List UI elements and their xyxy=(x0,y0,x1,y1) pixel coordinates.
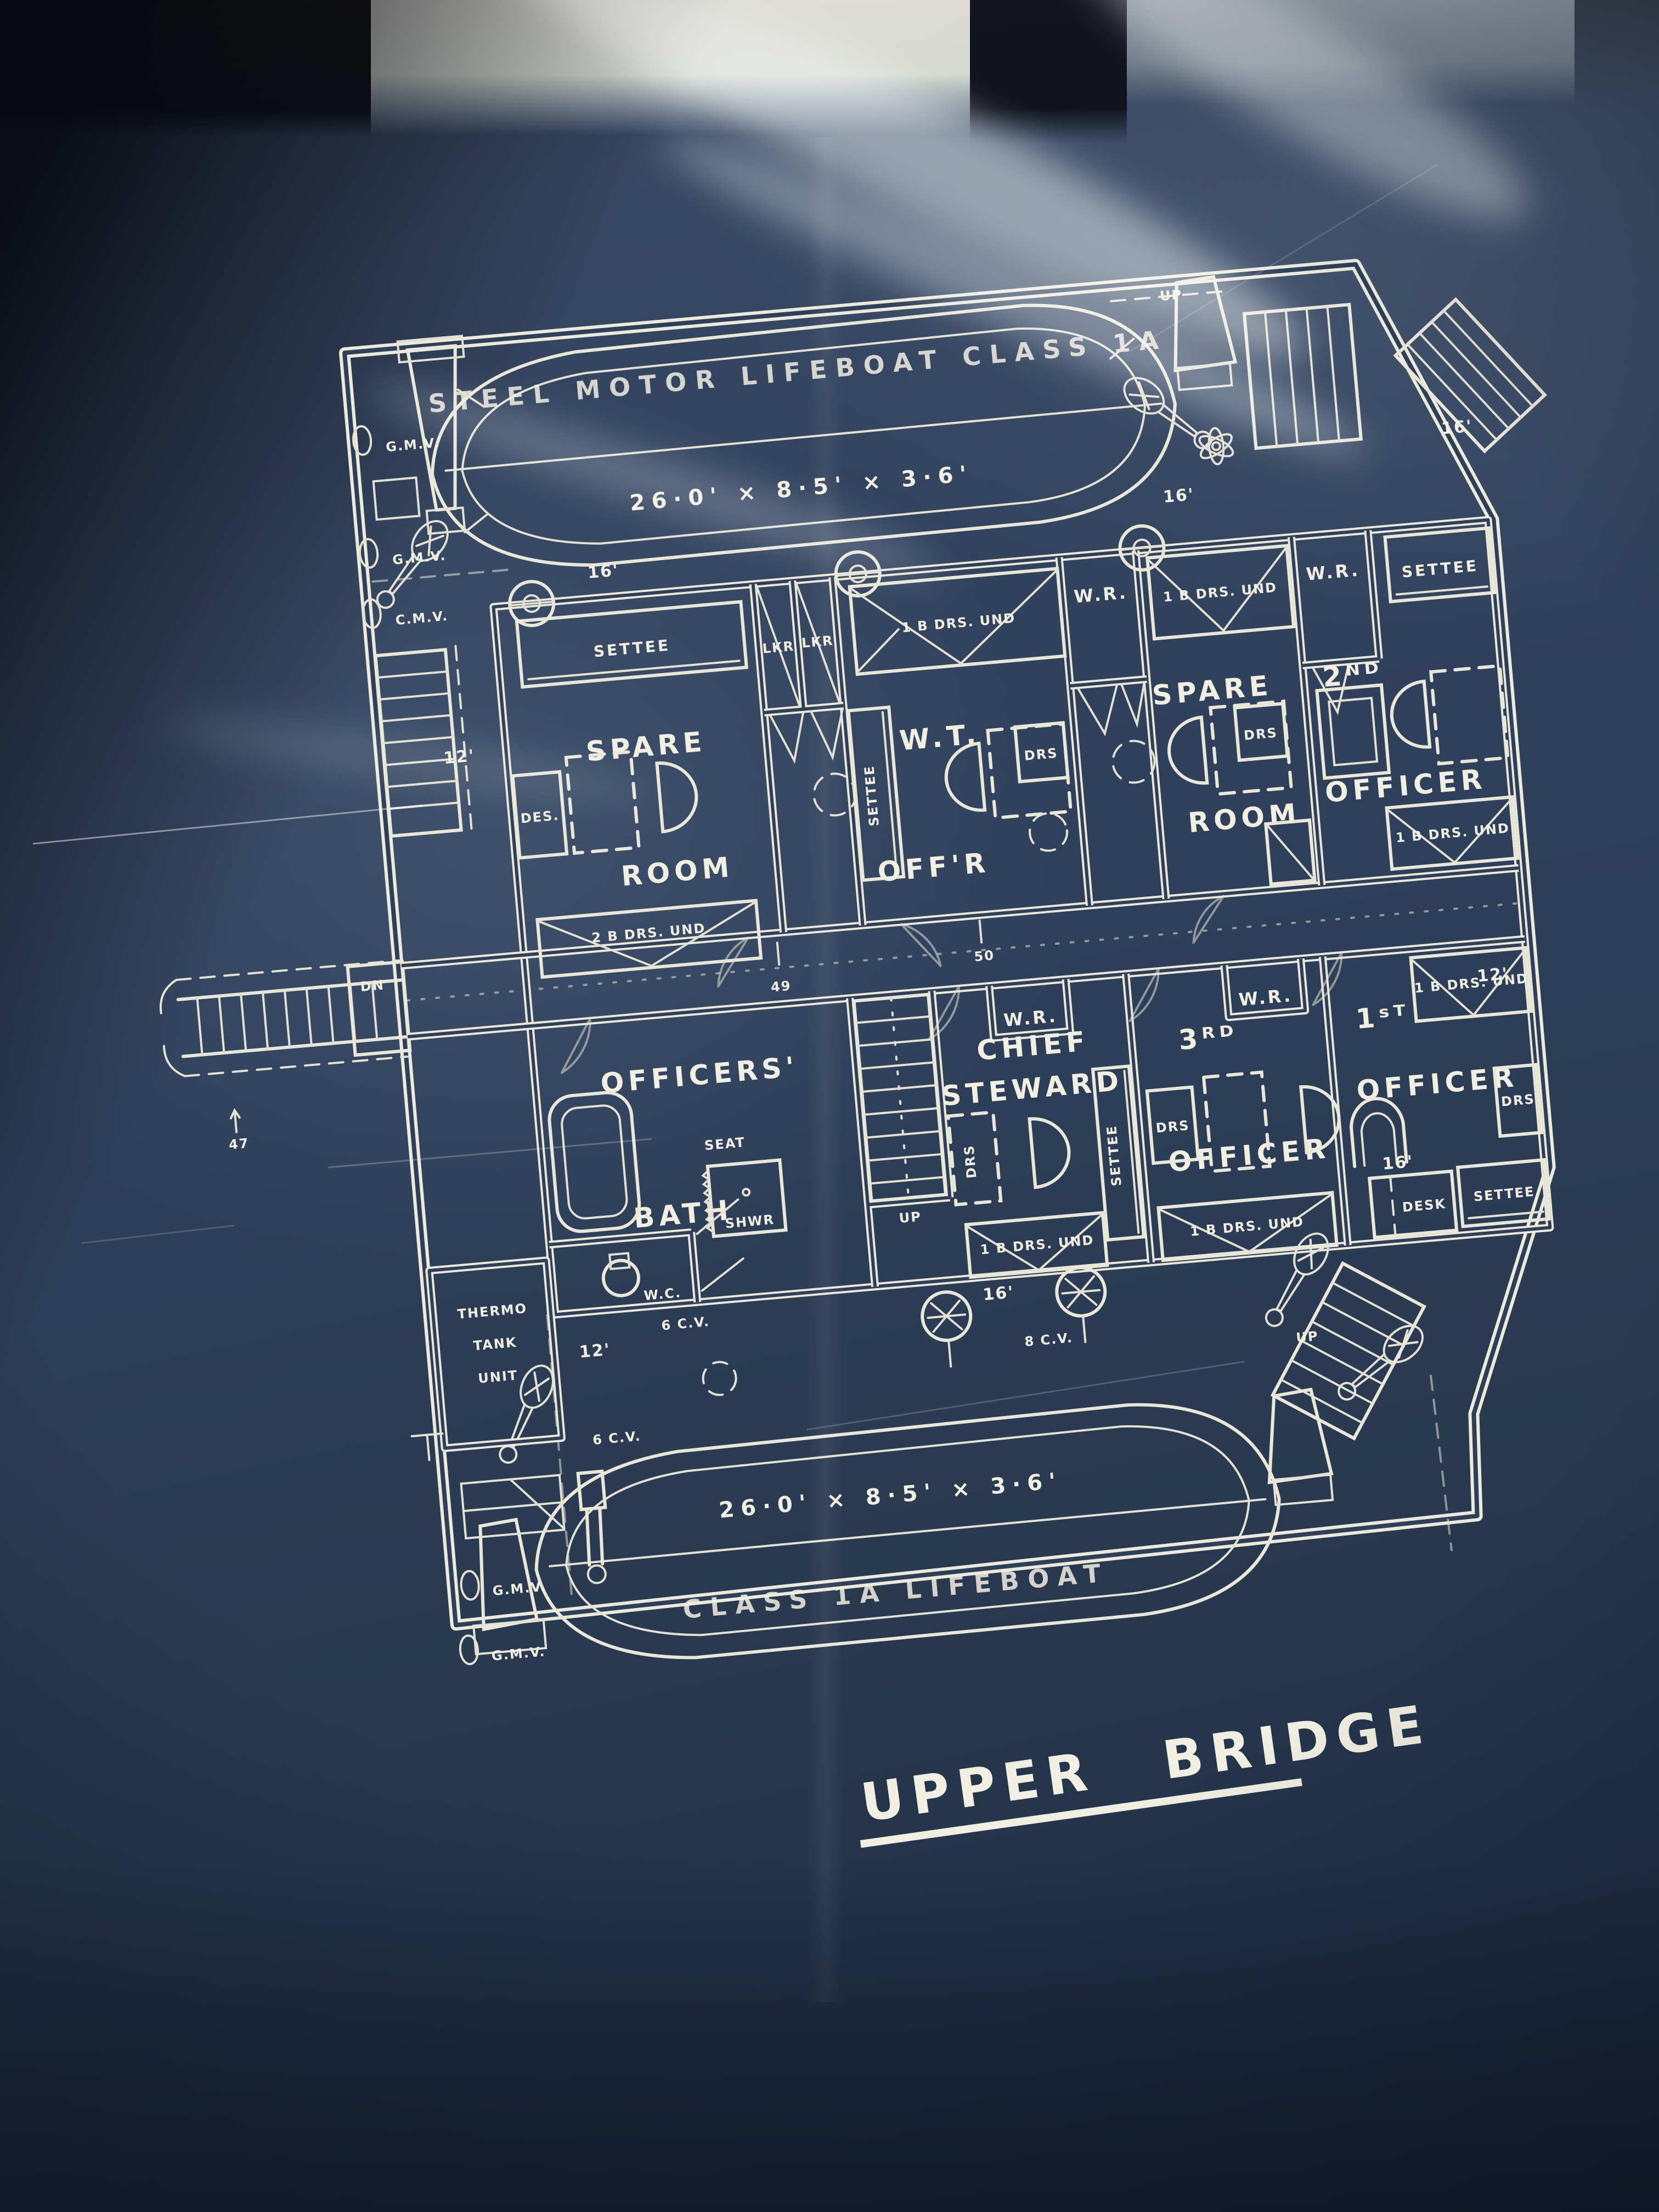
photo-vignette xyxy=(0,0,1659,2212)
framed-blueprint-photo: STEEL MOTOR LIFEBOAT CLASS 1A 26·0' × 8·… xyxy=(0,0,1659,2212)
